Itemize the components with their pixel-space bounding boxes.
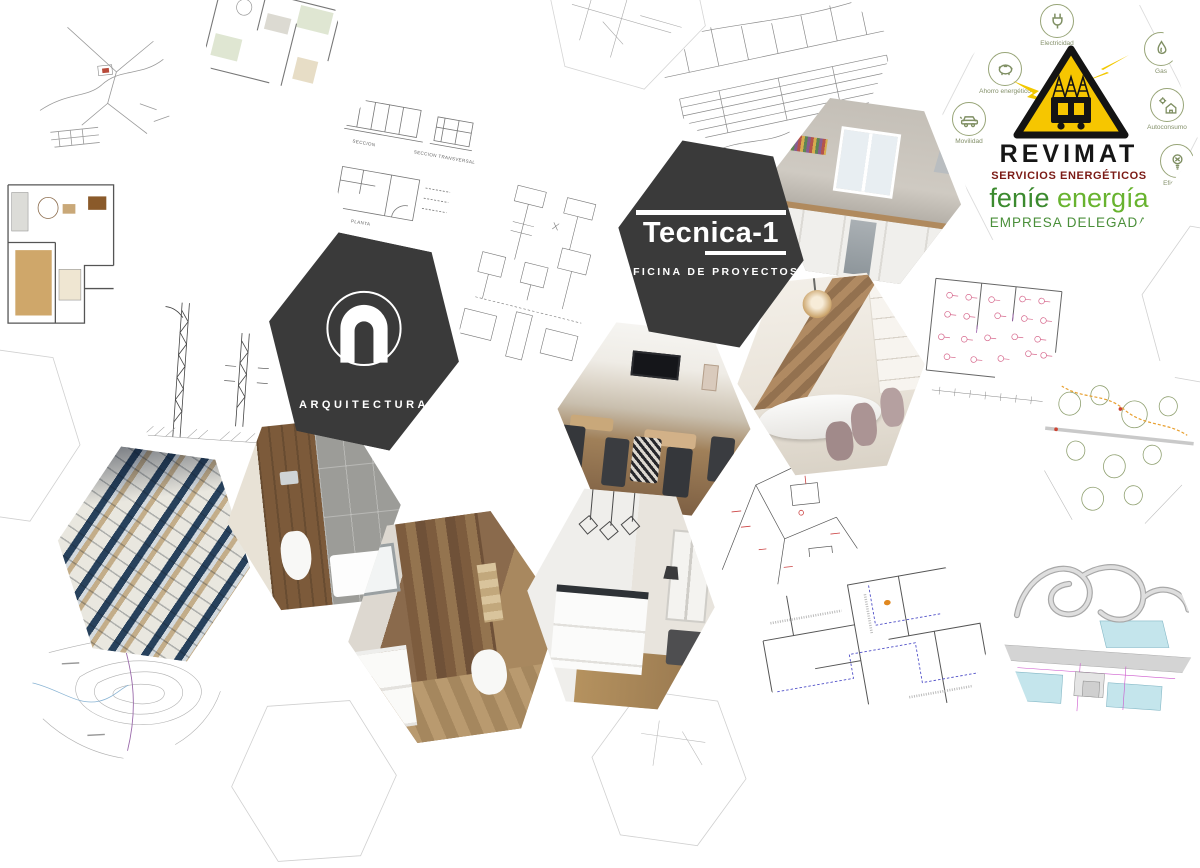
car-icon [952, 102, 986, 136]
revimat-subtitle: SERVICIOS ENERGÉTICOS [991, 170, 1146, 182]
kitchen-photo-2 [516, 482, 726, 716]
colored-floor-plan-tile [0, 158, 150, 350]
kitchen-photo-2-tile [516, 482, 726, 716]
wire-pendant-lamp [621, 516, 641, 536]
wall-tv [631, 351, 681, 380]
hexagon-collage-page: { "colors": { "dark_hex": "#3a3a3a", "re… [0, 0, 1200, 739]
service-gas: Gas [1129, 32, 1193, 75]
revimat-title: REVIMAT [1000, 142, 1139, 167]
revimat-warning-triangle-icon [1011, 40, 1131, 142]
ghost-hexagon-left [0, 338, 95, 531]
kitchen-window [833, 127, 901, 199]
ghost-hexagon-outline [0, 338, 95, 531]
fenie-brand-first: feníe [989, 183, 1049, 213]
floor-lamp-shade [663, 566, 679, 580]
sofa [665, 629, 710, 667]
fenie-brand-second: energía [1057, 183, 1149, 213]
arquitectura-logo: ARQUITECTURA [259, 232, 469, 451]
tecnica1-underbar [705, 251, 786, 255]
kitchen-island [550, 585, 649, 676]
wire-pendant-lamp [599, 521, 619, 541]
ghost-hexagon-bottom-2 [578, 681, 760, 854]
patterned-chair [630, 436, 662, 484]
wire-pendant-lamp [578, 515, 598, 535]
plug-icon [1040, 4, 1074, 38]
service-autoconsumo: Autoconsumo [1135, 88, 1199, 131]
fenie-energia-brand: feníe energía [989, 184, 1148, 214]
ghost-hexagon-bottom-1 [223, 694, 406, 868]
tecnica1-wordmark: Tecnica-1 [636, 210, 786, 255]
pendant-cord [589, 487, 593, 520]
revimat-text-block: REVIMAT SERVICIOS ENERGÉTICOS feníe ener… [959, 142, 1179, 230]
colored-floor-plan-drawing [0, 158, 150, 350]
karting-track-plan-drawing [988, 518, 1200, 750]
arquitectura-label: ARQUITECTURA [299, 399, 429, 411]
ghost-hexagon-outline [578, 681, 760, 854]
pendant-cord [610, 489, 615, 526]
solar-house-icon [1150, 88, 1184, 122]
revimat-logo: Electricidad Ahorro energético Movilidad [933, 0, 1200, 254]
dark-chair [662, 447, 693, 498]
karting-track-plan-tile [988, 518, 1200, 750]
revimat-tagline: EMPRESA DELEGADA [990, 215, 1149, 230]
tecnica1-name: Tecnica-1 [636, 218, 786, 248]
dark-chair [552, 424, 585, 479]
service-movilidad: Movilidad [937, 102, 1001, 145]
arch-icon [305, 273, 423, 391]
dark-chair [601, 437, 630, 488]
wall-art [701, 364, 719, 392]
flush-plate [279, 470, 298, 485]
flame-icon [1144, 32, 1178, 66]
tecnica1-subtitle: OFICINA DE PROYECTOS [623, 266, 800, 278]
ghost-hexagon-outline [223, 694, 406, 868]
mauve-chair [879, 386, 906, 428]
